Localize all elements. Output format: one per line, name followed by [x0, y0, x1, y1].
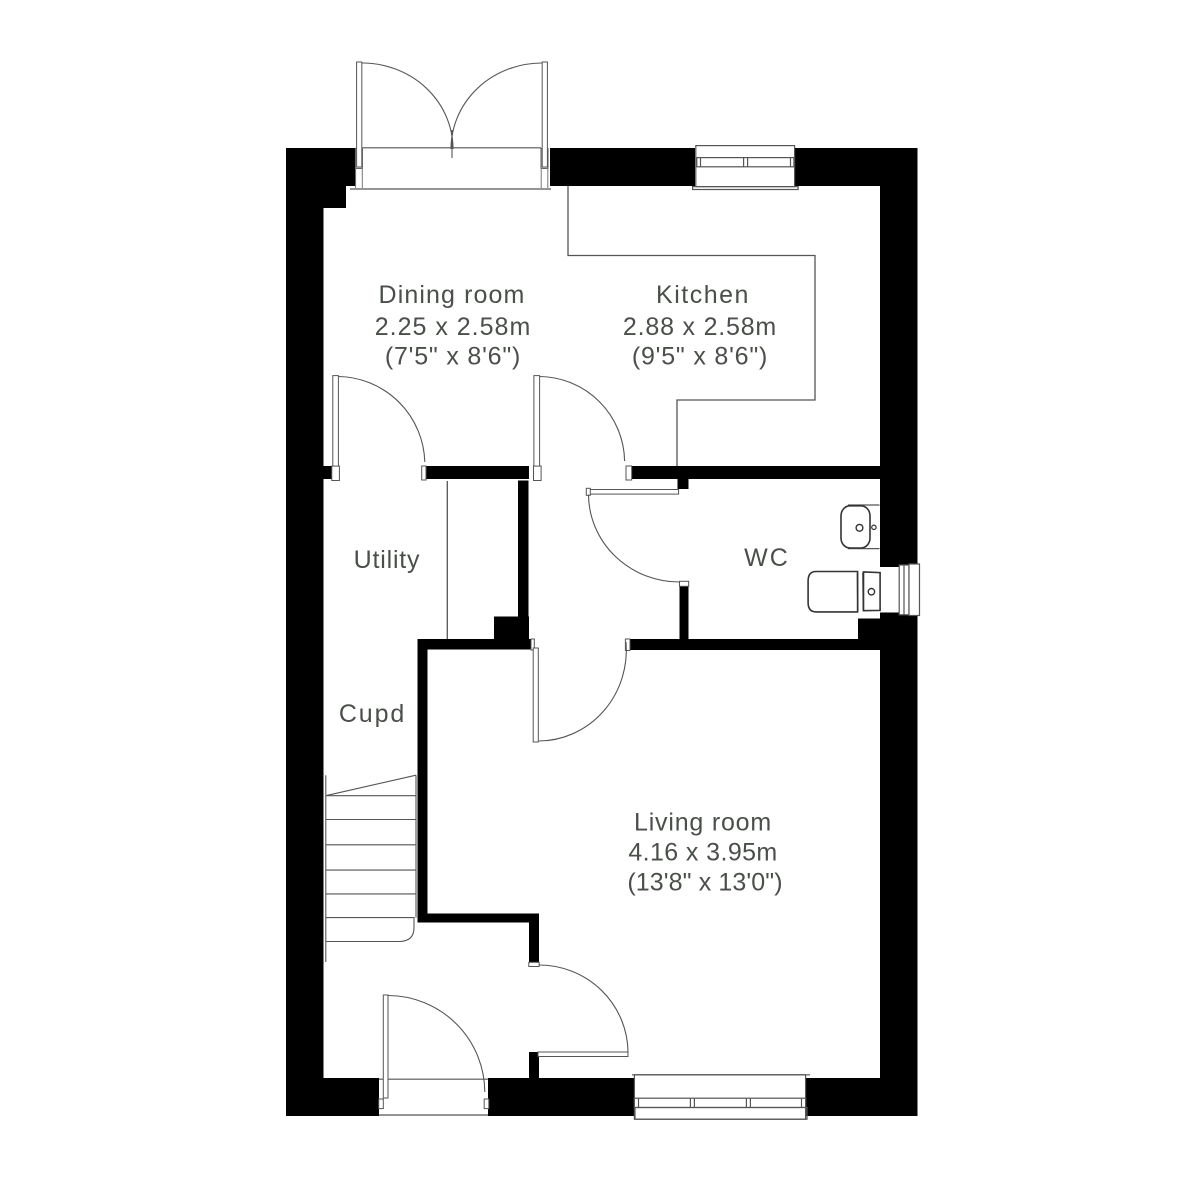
svg-text:Utility: Utility [354, 546, 421, 574]
svg-text:(9'5" x 8'6"): (9'5" x 8'6") [632, 343, 768, 371]
svg-text:2.88 x 2.58m: 2.88 x 2.58m [623, 313, 777, 341]
svg-text:4.16 x 3.95m: 4.16 x 3.95m [628, 839, 777, 867]
svg-text:Kitchen: Kitchen [656, 281, 750, 309]
svg-text:Living room: Living room [634, 809, 772, 837]
svg-text:WC: WC [744, 544, 790, 572]
svg-text:(7'5" x 8'6"): (7'5" x 8'6") [385, 343, 521, 371]
svg-text:(13'8" x 13'0"): (13'8" x 13'0") [627, 869, 782, 897]
svg-text:Dining room: Dining room [379, 281, 526, 309]
svg-text:2.25 x 2.58m: 2.25 x 2.58m [375, 313, 532, 341]
svg-text:Cupd: Cupd [339, 700, 406, 728]
